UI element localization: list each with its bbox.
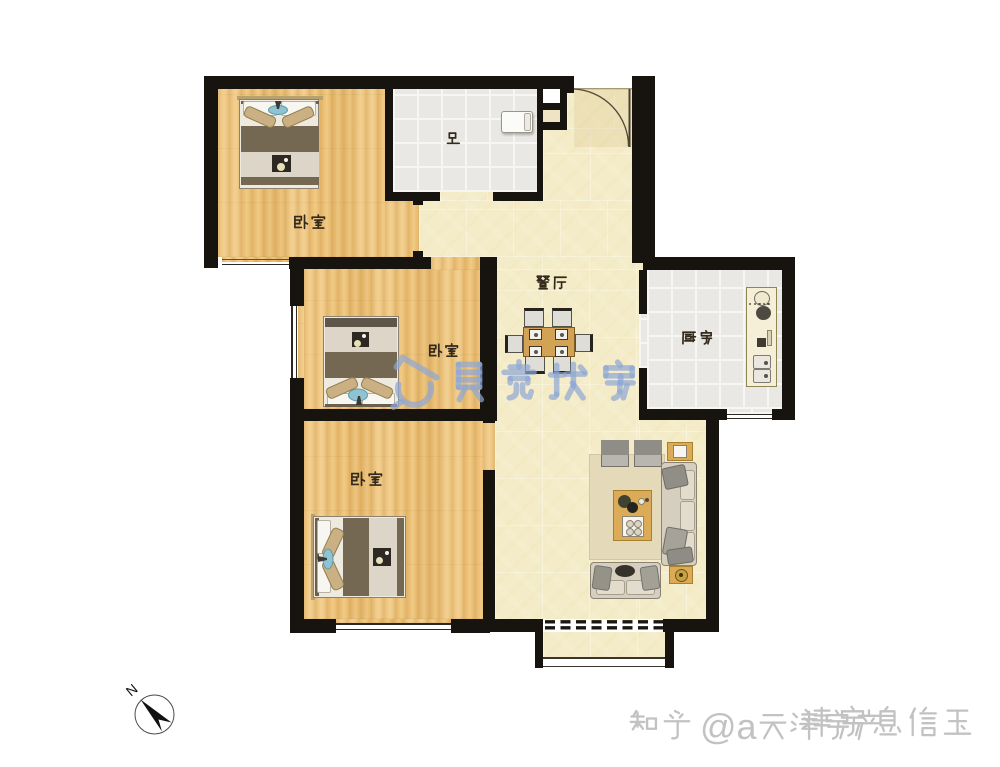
svg-text:N: N: [123, 681, 141, 700]
svg-text:@a: @a: [700, 706, 758, 747]
